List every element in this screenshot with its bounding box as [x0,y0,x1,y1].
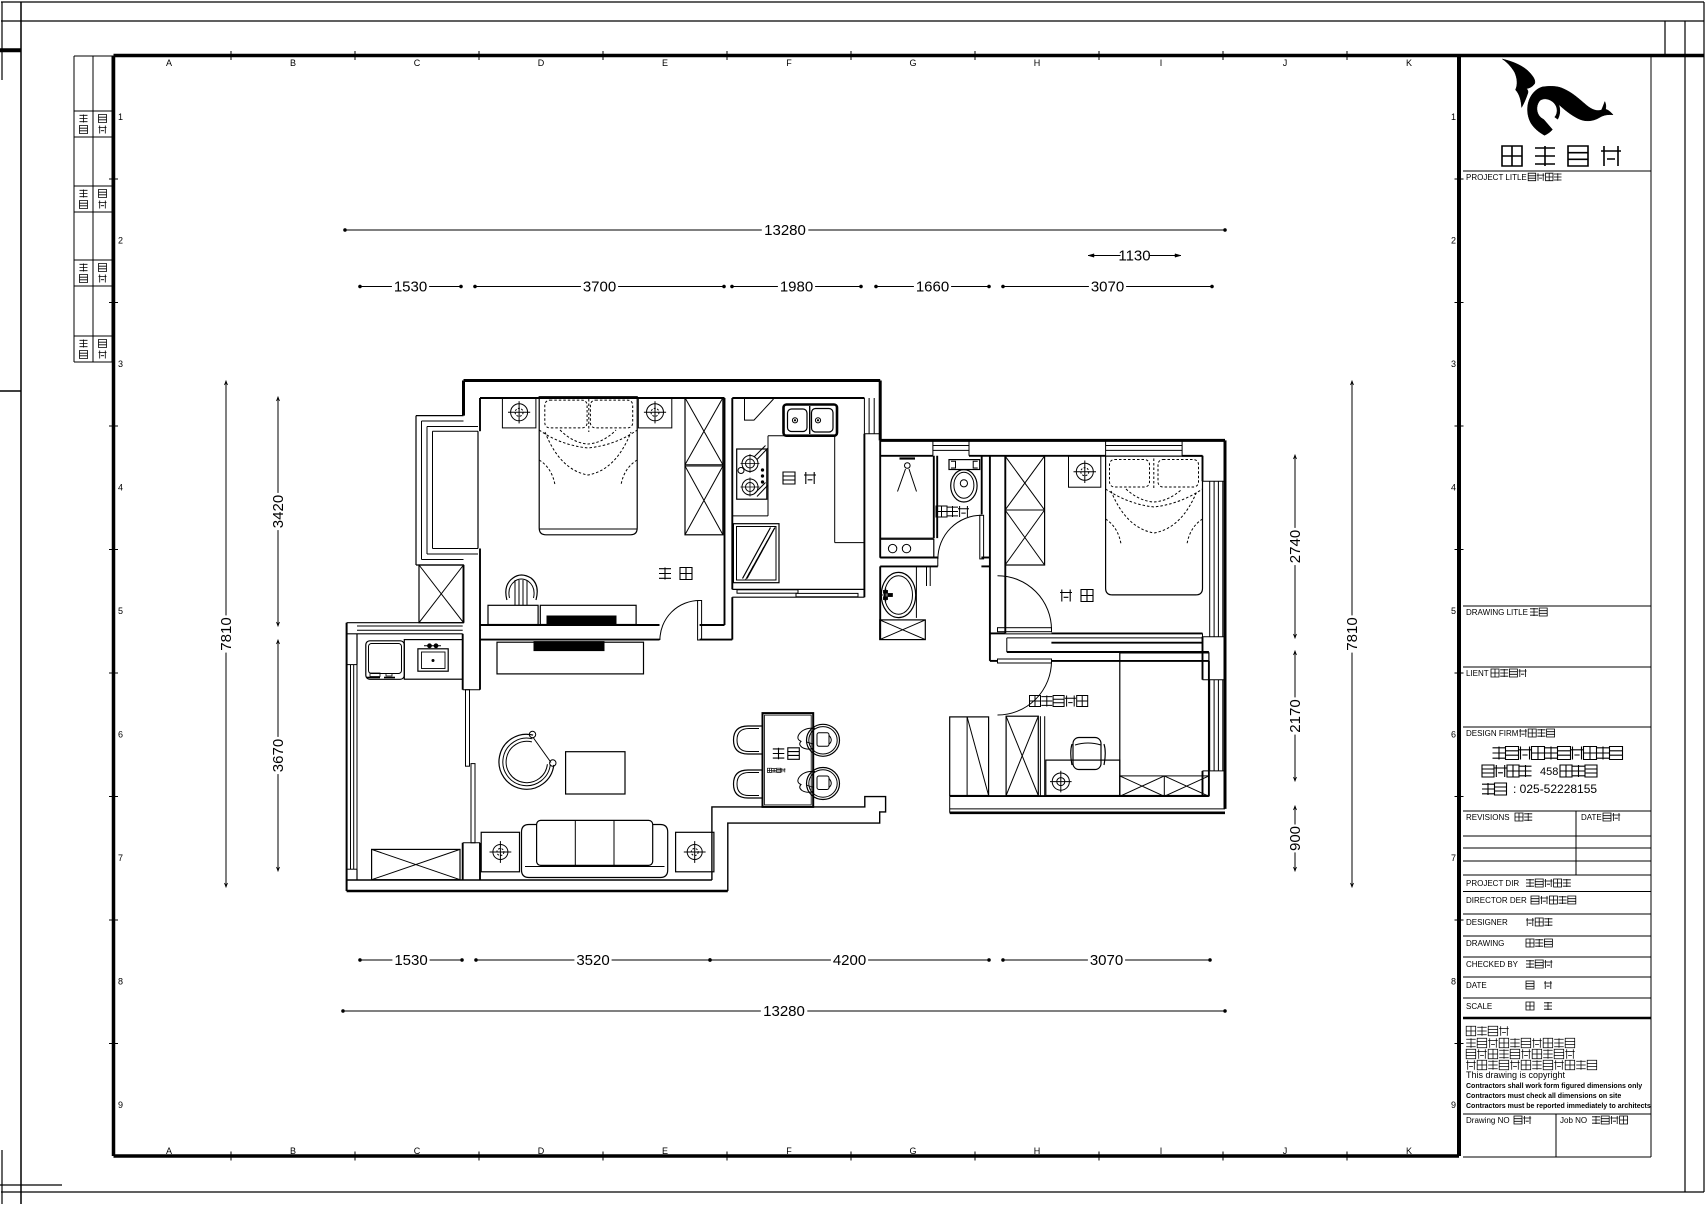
svg-text:F: F [786,58,792,68]
svg-text:C: C [414,58,421,68]
svg-text:3420: 3420 [270,495,287,528]
svg-text:13280: 13280 [764,222,806,239]
svg-text:H: H [1034,58,1041,68]
svg-text:1130: 1130 [1118,247,1150,264]
svg-text:E: E [662,1146,668,1156]
svg-text:3070: 3070 [1090,952,1123,969]
svg-text:5: 5 [1451,606,1456,616]
svg-text:Contractors shall work form fi: Contractors shall work form figured dime… [1466,1083,1642,1090]
svg-text:3670: 3670 [270,739,287,772]
svg-text:6: 6 [1451,730,1456,740]
svg-text:SCALE: SCALE [1466,1002,1492,1011]
svg-text:LIENT: LIENT [1466,669,1489,678]
svg-text:4200: 4200 [833,952,866,969]
svg-text:9: 9 [1451,1100,1456,1110]
svg-text:E: E [662,58,668,68]
svg-text:G: G [909,58,916,68]
svg-text:PROJECT DIR: PROJECT DIR [1466,879,1519,888]
svg-text:F: F [786,1146,792,1156]
svg-text:7: 7 [1451,853,1456,863]
svg-text:Job NO: Job NO [1560,1116,1587,1125]
svg-text:13280: 13280 [763,1003,805,1020]
svg-text:: 025-52228155: : 025-52228155 [1513,782,1597,796]
svg-text:4: 4 [1451,483,1456,493]
svg-text:B: B [290,58,296,68]
svg-text:6: 6 [118,730,123,740]
svg-text:8: 8 [1451,977,1456,987]
svg-text:I: I [1160,1146,1163,1156]
svg-text:DIRECTOR DER: DIRECTOR DER [1466,896,1527,905]
svg-text:REVISIONS: REVISIONS [1466,813,1510,822]
svg-text:C: C [414,1146,421,1156]
svg-text:2: 2 [118,236,123,246]
svg-text:3700: 3700 [583,278,616,295]
svg-text:D: D [538,58,545,68]
svg-text:H: H [1034,1146,1041,1156]
svg-text:7810: 7810 [218,617,235,650]
svg-text:900: 900 [1287,826,1304,851]
svg-text:K: K [1406,1146,1412,1156]
svg-text:1660: 1660 [916,278,949,295]
svg-text:9: 9 [118,1100,123,1110]
svg-text:DRAWING LITLE: DRAWING LITLE [1466,608,1528,617]
svg-text:Drawing NO: Drawing NO [1466,1116,1510,1125]
svg-text:7: 7 [118,853,123,863]
svg-text:1530: 1530 [394,952,427,969]
svg-text:G: G [909,1146,916,1156]
svg-text:Contractors must be reported i: Contractors must be reported immediately… [1466,1103,1651,1110]
svg-text:5: 5 [118,606,123,616]
svg-text:PROJECT LITLE: PROJECT LITLE [1466,173,1527,182]
svg-text:DATE: DATE [1581,813,1602,822]
svg-text:DRAWING: DRAWING [1466,939,1504,948]
svg-text:3: 3 [1451,359,1456,369]
svg-text:J: J [1283,58,1288,68]
svg-text:458: 458 [1540,766,1558,778]
svg-text:This drawing is copyright: This drawing is copyright [1466,1070,1566,1080]
svg-text:2170: 2170 [1287,699,1304,732]
svg-text:DATE: DATE [1466,981,1487,990]
svg-text:4: 4 [118,483,123,493]
svg-text:DESIGN FIRM: DESIGN FIRM [1466,729,1519,738]
svg-text:K: K [1406,58,1412,68]
svg-text:A: A [166,1146,172,1156]
svg-text:A: A [166,58,172,68]
svg-text:7810: 7810 [1344,617,1361,650]
svg-text:J: J [1283,1146,1288,1156]
svg-text:1: 1 [1451,112,1456,122]
svg-text:B: B [290,1146,296,1156]
svg-text:2740: 2740 [1287,530,1304,563]
svg-text:DESIGNER: DESIGNER [1466,918,1508,927]
svg-text:D: D [538,1146,545,1156]
svg-text:Contractors must check all dim: Contractors must check all dimensions on… [1466,1093,1621,1100]
svg-text:2: 2 [1451,236,1456,246]
svg-text:8: 8 [118,977,123,987]
svg-text:I: I [1160,58,1163,68]
svg-text:1: 1 [118,112,123,122]
svg-text:3: 3 [118,359,123,369]
svg-text:1530: 1530 [394,278,427,295]
svg-text:3520: 3520 [576,952,609,969]
svg-text:1980: 1980 [780,278,813,295]
svg-text:CHECKED BY: CHECKED BY [1466,960,1519,969]
svg-text:3070: 3070 [1091,278,1124,295]
